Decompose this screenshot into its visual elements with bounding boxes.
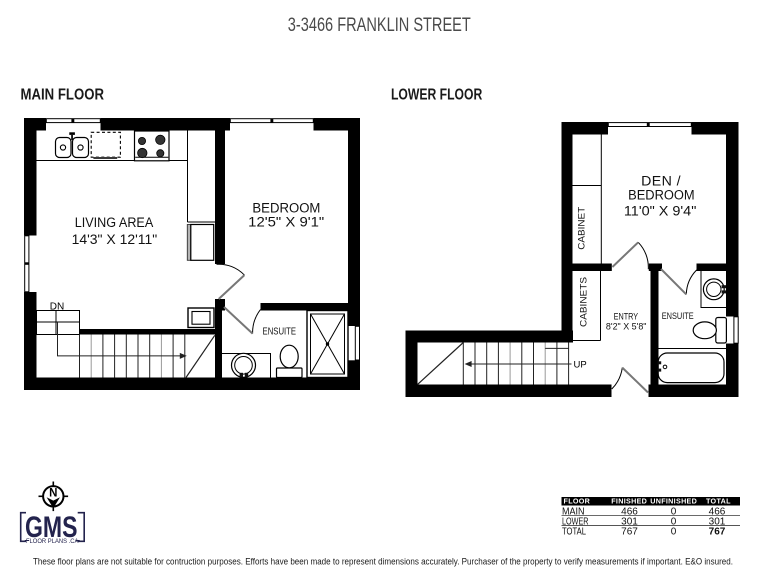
- svg-text:FLOOR PLANS .CA: FLOOR PLANS .CA: [26, 538, 79, 545]
- svg-text:DN: DN: [50, 302, 65, 313]
- svg-text:FINISHED: FINISHED: [611, 497, 647, 506]
- svg-text:ENSUITE: ENSUITE: [263, 327, 297, 338]
- svg-text:MAIN FLOOR: MAIN FLOOR: [21, 87, 105, 104]
- svg-text:CABINETS: CABINETS: [579, 277, 590, 327]
- svg-text:12'5" X 9'1": 12'5" X 9'1": [248, 214, 324, 230]
- svg-text:8'2" X 5'8": 8'2" X 5'8": [606, 322, 647, 332]
- svg-text:TOTAL: TOTAL: [562, 527, 586, 538]
- svg-text:These floor plans are not suit: These floor plans are not suitable for c…: [33, 557, 733, 567]
- svg-text:UNFINISHED: UNFINISHED: [650, 497, 697, 506]
- svg-text:ENTRY: ENTRY: [614, 312, 639, 322]
- svg-text:TOTAL: TOTAL: [706, 497, 731, 506]
- svg-text:3-3466 FRANKLIN STREET: 3-3466 FRANKLIN STREET: [288, 14, 471, 36]
- svg-text:BEDROOM: BEDROOM: [628, 188, 695, 204]
- svg-text:CABINET: CABINET: [576, 207, 587, 250]
- svg-text:0: 0: [671, 527, 677, 538]
- svg-text:767: 767: [621, 527, 638, 538]
- svg-text:N: N: [49, 488, 57, 500]
- svg-text:ENSUITE: ENSUITE: [662, 311, 694, 321]
- svg-text:767: 767: [709, 527, 726, 538]
- svg-text:14'3" X 12'11": 14'3" X 12'11": [72, 232, 158, 248]
- svg-text:LIVING AREA: LIVING AREA: [75, 215, 154, 231]
- svg-text:11'0" X 9'4": 11'0" X 9'4": [624, 204, 697, 220]
- svg-text:UP: UP: [574, 359, 587, 370]
- svg-text:FLOOR: FLOOR: [564, 497, 591, 506]
- svg-text:LOWER FLOOR: LOWER FLOOR: [391, 87, 482, 104]
